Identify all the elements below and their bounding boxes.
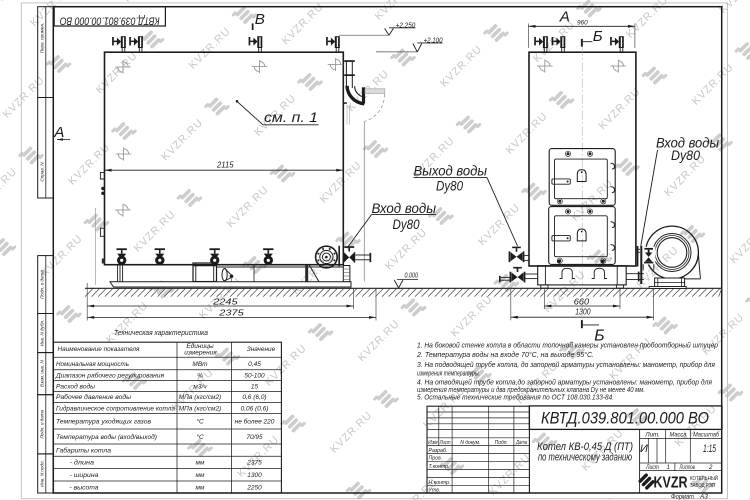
svg-text:МПа (кгс/см2): МПа (кгс/см2) [179,394,221,401]
svg-text:0.000: 0.000 [405,270,419,279]
svg-text:И: И [640,443,648,455]
svg-text:%: % [197,373,203,380]
svg-text:0,6 (6,0): 0,6 (6,0) [242,394,266,401]
svg-text:Масса: Масса [670,432,688,439]
svg-text:Подп. и дата: Подп. и дата [39,270,44,299]
svg-text:А: А [559,8,570,25]
svg-text:KVZR: KVZR [654,475,688,492]
svg-text:- длина: - длина [70,459,95,467]
svg-text:Инв. N подл.: Инв. N подл. [39,460,44,487]
svg-text:2115: 2115 [216,160,234,170]
svg-text:1300: 1300 [247,472,262,479]
svg-text:МВт: МВт [192,361,208,368]
svg-text:Рабочее давление воды: Рабочее давление воды [56,393,131,401]
svg-text:Лит.: Лит. [644,432,660,439]
svg-text:Dy80: Dy80 [436,178,463,193]
svg-text:Дата: Дата [515,440,527,446]
svg-text:Масштаб: Масштаб [693,432,719,439]
svg-text:Разраб.: Разраб. [429,448,448,454]
svg-text:мм: мм [196,460,205,467]
svg-text:мм: мм [196,472,205,479]
svg-text:0,06 (0,6): 0,06 (0,6) [241,405,269,412]
svg-text:Изм: Изм [428,440,438,446]
svg-text:Температура воды (вход/выход): Температура воды (вход/выход) [56,433,157,441]
svg-text:Перв. примен.: Перв. примен. [39,23,44,54]
svg-text:660: 660 [574,298,590,307]
svg-text:Расход воды: Расход воды [56,382,95,390]
svg-text:70/95: 70/95 [246,434,263,441]
svg-text:Вход воды: Вход воды [372,201,437,216]
svg-text:Значение: Значение [247,346,276,353]
svg-text:м3/ч: м3/ч [193,383,207,390]
svg-text:В: В [255,11,265,28]
svg-text:0,45: 0,45 [248,361,261,368]
svg-text:Dy80: Dy80 [671,148,700,163]
svg-text:Наименование показателя: Наименование показателя [58,346,141,353]
svg-text:КВТД.039.801.00.000 ВО: КВТД.039.801.00.000 ВО [60,14,160,26]
svg-text:2245: 2245 [212,296,238,306]
svg-text:N докум.: N докум. [460,440,480,446]
svg-text:Пров.: Пров. [429,456,443,462]
svg-text:Взам. инв. N: Взам. инв. N [39,360,44,387]
svg-text:5. Остальные технические треб: 5. Остальные технические требования по О… [417,394,614,402]
svg-text:измерения температуры и два пр: измерения температуры и два предохраните… [417,386,645,394]
svg-text:2: 2 [708,464,713,471]
svg-text:Т.контр.: Т.контр. [429,464,450,470]
svg-text:по техническому заданию: по техническому заданию [538,451,632,463]
svg-text:960: 960 [577,19,588,26]
svg-text:Номинальная мощность: Номинальная мощность [56,361,130,368]
svg-text:Подп.: Подп. [495,440,508,446]
svg-text:- высота: - высота [70,484,99,491]
svg-text:МПа (кгс/см2): МПа (кгс/см2) [179,405,221,412]
svg-text:2375: 2375 [246,460,262,467]
svg-text:2375: 2375 [218,307,244,317]
svg-text:1:15: 1:15 [703,443,717,455]
svg-text:+2.250: +2.250 [396,20,416,29]
svg-text:Н.контр.: Н.контр. [429,480,451,486]
svg-text:°С: °С [196,433,204,441]
svg-text:°С: °С [196,418,204,426]
svg-text:1: 1 [667,464,670,471]
svg-text:КВТД.039.801.00.000 ВО: КВТД.039.801.00.000 ВО [541,409,709,428]
svg-text:15: 15 [251,383,259,390]
svg-text:Инв. N дубл.: Инв. N дубл. [39,320,44,347]
svg-text:2. Температура воды на входе: 2. Температура воды на входе 70°С, на вы… [416,351,594,359]
svg-text:2250: 2250 [246,484,262,491]
svg-text:измерения: измерения [184,350,217,357]
svg-text:не более 220: не более 220 [235,418,275,426]
svg-text:+2.100: +2.100 [424,36,444,45]
svg-text:Справ. N: Справ. N [39,162,44,182]
svg-text:ЗАВОД РЭП: ЗАВОД РЭП [690,483,715,489]
svg-text:Температура уходящих газов: Температура уходящих газов [56,418,152,426]
svg-text:3. На подводящей трубе котла,: 3. На подводящей трубе котла, до запорно… [417,361,715,369]
svg-text:см. п. 1: см. п. 1 [264,110,318,125]
svg-text:Утв.: Утв. [429,488,441,494]
svg-text:Листов: Листов [679,464,695,471]
svg-text:Выход воды: Выход воды [414,164,488,179]
svg-text:Техническая характеристика: Техническая характеристика [114,330,208,337]
svg-text:Габариты котла: Габариты котла [56,446,111,454]
svg-text:КОТЕЛЬНЫЙ: КОТЕЛЬНЫЙ [690,474,718,482]
svg-text:50-100: 50-100 [244,373,265,380]
svg-text:1. На боковой стенке котла в: 1. На боковой стенке котла в области топ… [417,341,718,349]
svg-text:А: А [53,124,64,141]
svg-text:4. На отводящей трубе котла,д: 4. На отводящей трубе котла,до запорной … [417,378,712,386]
svg-text:Dy80: Dy80 [393,217,420,232]
svg-text:Б: Б [593,28,603,45]
svg-text:Гидравлическое сопротивление к: Гидравлическое сопротивление котла [56,404,175,412]
svg-text:Лист: Лист [645,464,659,471]
svg-text:А3: А3 [699,493,708,500]
svg-text:мм: мм [196,484,205,491]
svg-text:Лист: Лист [439,440,451,446]
svg-text:Подп. и дата: Подп. и дата [39,409,44,438]
svg-text:Формат: Формат [671,493,695,500]
svg-text:- ширина: - ширина [70,472,99,479]
svg-text:Диапазон рабочего регулировани: Диапазон рабочего регулирования [55,372,165,380]
svg-text:измерения температуры.: измерения температуры. [417,370,480,377]
svg-text:1300: 1300 [575,308,591,317]
